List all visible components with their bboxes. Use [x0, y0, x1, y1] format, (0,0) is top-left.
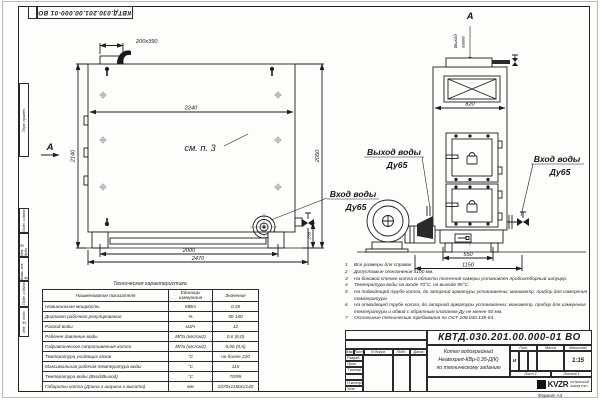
- gas-out-word1: Выход: [453, 34, 458, 48]
- note-item: 2Допустимые отклонения ±100 мм.: [345, 270, 589, 276]
- row-units: м3/ч: [169, 322, 213, 332]
- front-inlet-valve: [507, 212, 529, 229]
- lit-cell-2: [519, 351, 528, 371]
- water-in-right-label: Вход воды: [534, 154, 581, 164]
- lit-cell-3: [528, 351, 537, 371]
- burner-cone: [417, 216, 433, 239]
- dim-2140-line: [76, 64, 88, 248]
- row-units: МВт: [169, 302, 213, 312]
- table-row: Гидравлическое сопротивление котлаМПа (к…: [43, 342, 259, 352]
- front-view: [327, 26, 586, 271]
- table-row: Расход водым3/ч12: [43, 322, 259, 332]
- company-name: КОТЕЛЬНЫЙ ЗАВОД РЭП: [570, 381, 589, 388]
- table-row: Габариты котла (Длина х ширина х высота)…: [43, 382, 259, 392]
- note-text: На отводящей трубе котла, до запорной ар…: [354, 303, 589, 315]
- side-inlet-valve: [295, 213, 314, 227]
- note-number: 5: [345, 290, 354, 302]
- doc-number: КВТД.030.201.00.000-01 ВО: [427, 330, 592, 345]
- dim-2470: 2470: [191, 256, 205, 262]
- note-text: На боковой стенке котла в области топочн…: [354, 277, 567, 283]
- tech-characteristics: Техническая характеристика Наименование …: [42, 281, 258, 392]
- note-item: 5На подводящей трубе котла, до запорной …: [345, 290, 589, 302]
- revision-row: [345, 330, 427, 340]
- revision-row: [345, 340, 427, 350]
- note-number: 7: [345, 316, 354, 322]
- note-number: 4: [345, 283, 354, 289]
- col-name: Наименование показателя: [43, 289, 169, 302]
- gas-out-word2: газов: [461, 36, 466, 48]
- note-item: 3На боковой стенке котла в области топоч…: [345, 277, 589, 283]
- dim-820: 820: [465, 102, 475, 108]
- company-cell: KVZR КОТЕЛЬНЫЙ ЗАВОД РЭП: [427, 377, 592, 392]
- note-item: 6На отводящей трубе котла, до запорной а…: [345, 303, 589, 315]
- dim-255: 255: [307, 231, 312, 240]
- water-out-flange: [427, 206, 430, 216]
- row-value: 70/95: [213, 372, 259, 382]
- row-name: Гидравлическое сопротивление котла: [43, 342, 169, 352]
- side-left-fittings: [84, 116, 88, 185]
- side-view: [41, 43, 327, 265]
- tech-table: Наименование показателя Единицы измерени…: [42, 289, 259, 393]
- note-item: 1Все размеры для справок: [345, 263, 589, 269]
- dim-200x390-line: [100, 43, 123, 54]
- product-name-line2: Heatexpert-КВр-0,35-Д(К): [438, 357, 498, 365]
- view-a-label-side: А: [46, 142, 54, 153]
- tech-table-header: Наименование показателя Единицы измерени…: [43, 289, 259, 302]
- row-name: Температура уходящих газов: [43, 352, 169, 362]
- dim-2240: 2240: [184, 106, 198, 112]
- mass-value: [537, 351, 564, 371]
- row-value: не более 220: [213, 352, 259, 362]
- upper-door: [446, 133, 502, 182]
- note-item: 4Температура воды на входе 70°С, на выхо…: [345, 283, 589, 289]
- row-units: °С: [169, 352, 213, 362]
- row-value: 0,6 (6,0): [213, 332, 259, 342]
- scale-value: 1:15: [564, 351, 592, 371]
- date-col: [410, 355, 427, 392]
- lit-value: И: [510, 351, 519, 371]
- notes-list: 1Все размеры для справок 2Допустимые отк…: [345, 263, 589, 323]
- row-value: 2470x1150x2140: [213, 382, 259, 392]
- table-row: Диапазон рабочего регулирования%50-100: [43, 312, 259, 322]
- sign-col: [393, 355, 410, 392]
- water-in-left-dn: Ду65: [345, 202, 367, 212]
- dim-550: 550: [463, 252, 473, 258]
- note-text: Остальные технические требования по ОСТ …: [354, 316, 494, 322]
- row-name: Расход воды: [43, 322, 169, 332]
- row-value: 115: [213, 362, 259, 372]
- names-col: [363, 355, 393, 392]
- table-row: Рабочее давление водыМПа (кгс/см2)0,6 (6…: [43, 332, 259, 342]
- dim-2050: 2050: [315, 149, 321, 163]
- see-note-ref: см. п. 3: [184, 143, 216, 153]
- table-row: Номинальная мощностьМВт0,35: [43, 302, 259, 312]
- flue-scoop: [117, 50, 131, 64]
- lower-door: [446, 184, 502, 227]
- row-units: МПа (кгс/см2): [169, 342, 213, 352]
- product-name: Котел водогрейный Heatexpert-КВр-0,35-Д(…: [427, 345, 510, 377]
- row-units: °С: [169, 362, 213, 372]
- col-units: Единицы измерения: [169, 289, 213, 302]
- row-name: Максимальная рабочая температура воды: [43, 362, 169, 372]
- row-units: °С: [169, 372, 213, 382]
- note-text: Температура воды на входе 70°С, на выход…: [354, 283, 469, 289]
- row-units: мм: [169, 382, 213, 392]
- format-label: Формат А3: [538, 393, 562, 398]
- dim-200x390: 200x390: [135, 39, 158, 45]
- row-name: Габариты котла (Длина х ширина х высота): [43, 382, 169, 392]
- kvzr-logo-icon: [537, 380, 546, 389]
- note-number: 2: [345, 270, 354, 276]
- row-name: Диапазон рабочего регулирования: [43, 312, 169, 322]
- drawing-sheet: КВТД.030.201.00.000-01 ВО Перв. примен. …: [0, 0, 600, 400]
- water-in-right-dn: Ду65: [549, 167, 571, 177]
- note-text: Все размеры для справок: [354, 263, 411, 269]
- table-row: Температура уходящих газов°Сне более 220: [43, 352, 259, 362]
- note-number: 6: [345, 303, 354, 315]
- water-out-dn: Ду65: [386, 160, 408, 170]
- water-out-label: Выход воды: [367, 147, 422, 157]
- product-name-line3: по техническому заданию: [436, 365, 500, 373]
- row-value: 0,06 (0,6): [213, 342, 259, 352]
- dim-2140: 2140: [71, 149, 77, 163]
- base-frame: [440, 230, 503, 252]
- title-block: Изм. Лист N докум. Подп. Дата Разраб. Пр…: [345, 330, 592, 392]
- row-name: Рабочее давление воды: [43, 332, 169, 342]
- row-name: Номинальная мощность: [43, 302, 169, 312]
- flue-collar: [446, 55, 518, 67]
- tech-table-title: Техническая характеристика: [42, 281, 258, 287]
- row-units: %: [169, 312, 213, 322]
- row-value: 0,35: [213, 302, 259, 312]
- row-value: 12: [213, 322, 259, 332]
- view-a-label-front: А: [466, 11, 474, 22]
- dim-2000: 2000: [182, 248, 196, 254]
- company-brand: KVZR КОТЕЛЬНЫЙ ЗАВОД РЭП: [428, 380, 591, 389]
- note-number: 1: [345, 263, 354, 269]
- row-name: Температура воды (Вход/Выход): [43, 372, 169, 382]
- kvzr-logo-text: KVZR: [548, 380, 569, 389]
- support-feet: [86, 232, 302, 248]
- note-number: 3: [345, 277, 354, 283]
- water-in-left-label: Вход воды: [330, 189, 377, 199]
- note-item: 7Остальные технические требования по ОСТ…: [345, 316, 589, 322]
- row-units: МПа (кгс/см2): [169, 332, 213, 342]
- table-row: Температура воды (Вход/Выход)°С70/95: [43, 372, 259, 382]
- company-line2: ЗАВОД РЭП: [570, 384, 587, 388]
- table-row: Максимальная рабочая температура воды°С1…: [43, 362, 259, 372]
- role-utv: Утв.: [345, 386, 363, 392]
- row-value: 50-100: [213, 312, 259, 322]
- product-name-line1: Котел водогрейный: [444, 349, 493, 357]
- note-text: Допустимые отклонения ±100 мм.: [354, 270, 434, 276]
- col-value: Значение: [213, 289, 259, 302]
- note-text: На подводящей трубе котла, до запорной а…: [354, 290, 589, 302]
